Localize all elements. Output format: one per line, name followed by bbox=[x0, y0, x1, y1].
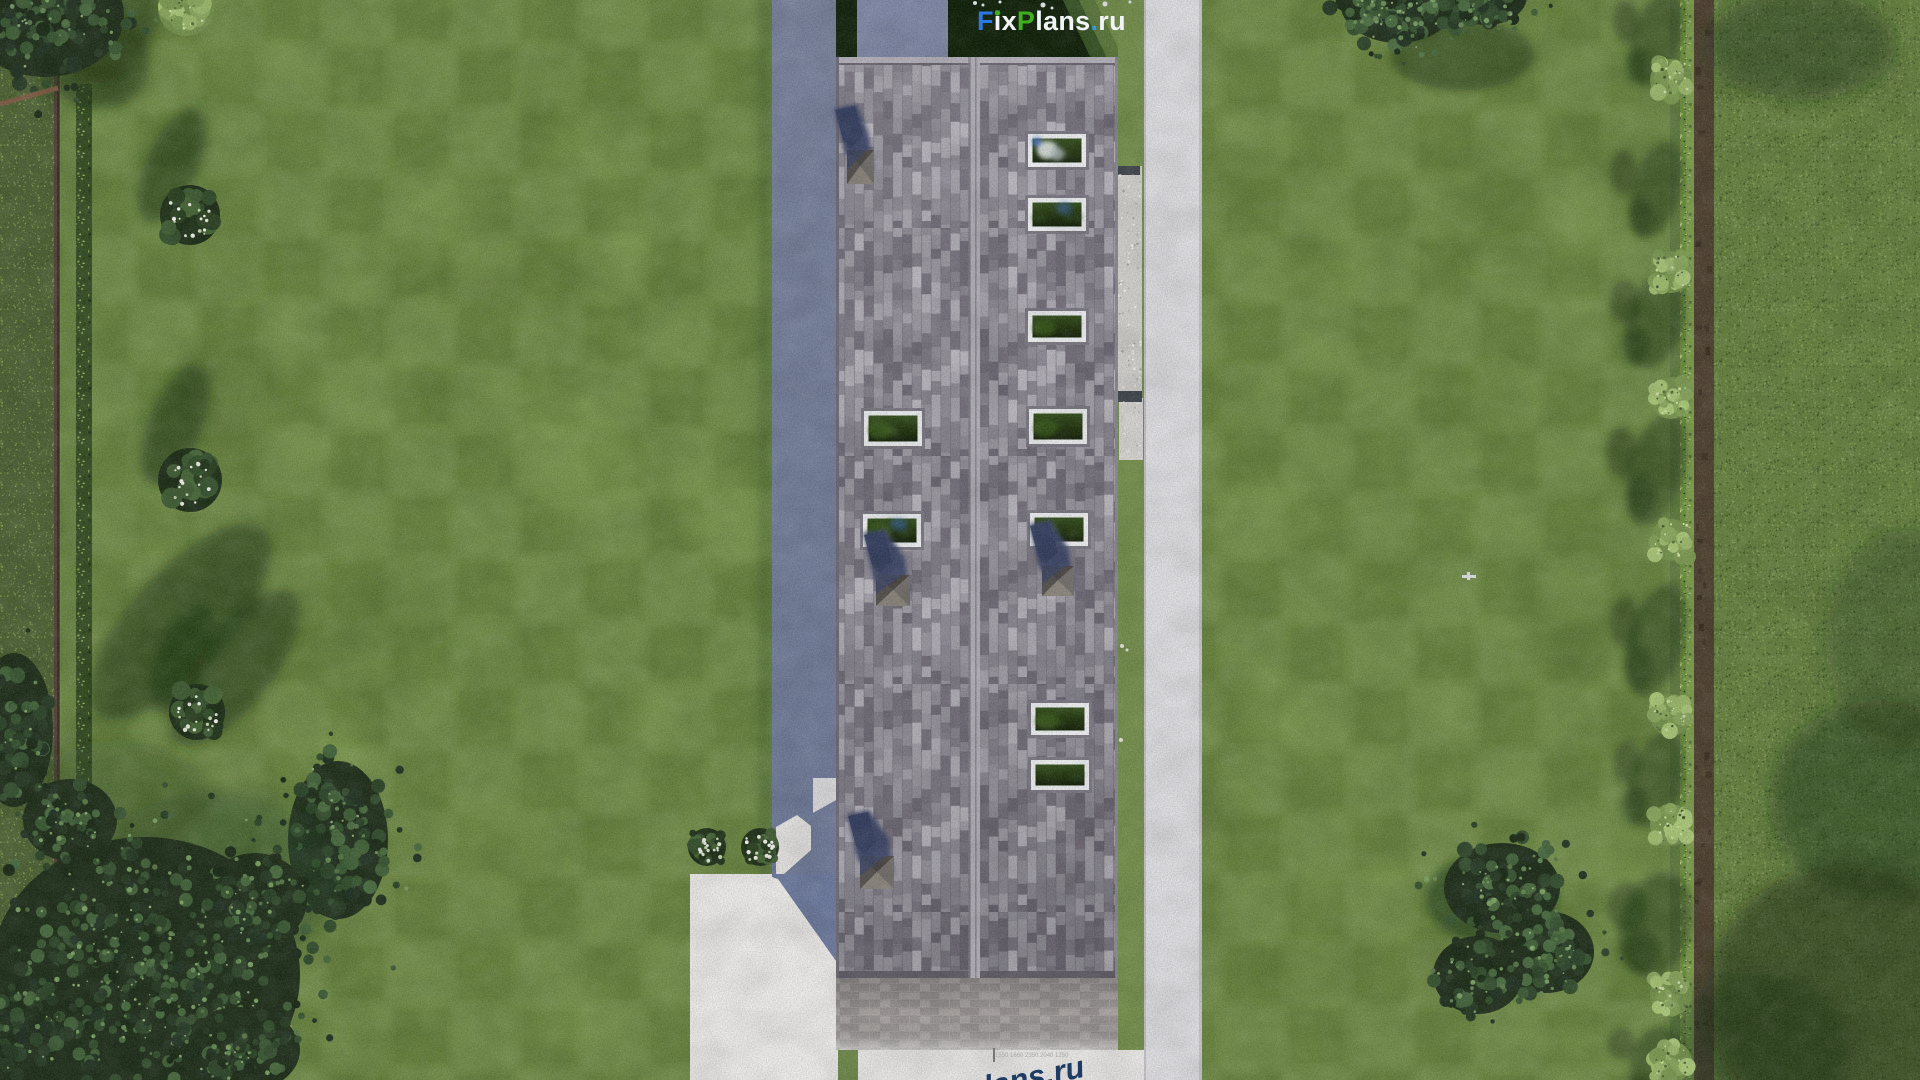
svg-text:FixPlans.ru: FixPlans.ru bbox=[977, 6, 1126, 36]
